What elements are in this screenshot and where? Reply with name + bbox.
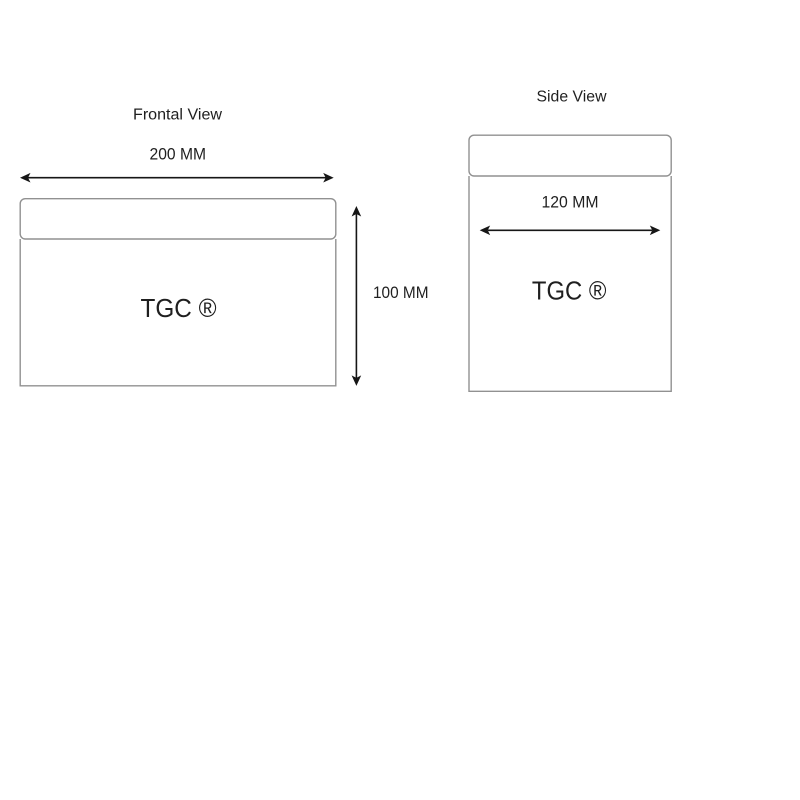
svg-text:120 MM: 120 MM [542,193,599,211]
svg-text:TGC ®: TGC ® [532,275,607,305]
svg-text:100 MM: 100 MM [373,283,429,302]
svg-text:TGC ®: TGC ® [141,293,217,323]
svg-text:Side View: Side View [537,88,608,105]
svg-text:200 MM: 200 MM [150,146,207,164]
svg-text:Frontal View: Frontal View [133,107,223,124]
